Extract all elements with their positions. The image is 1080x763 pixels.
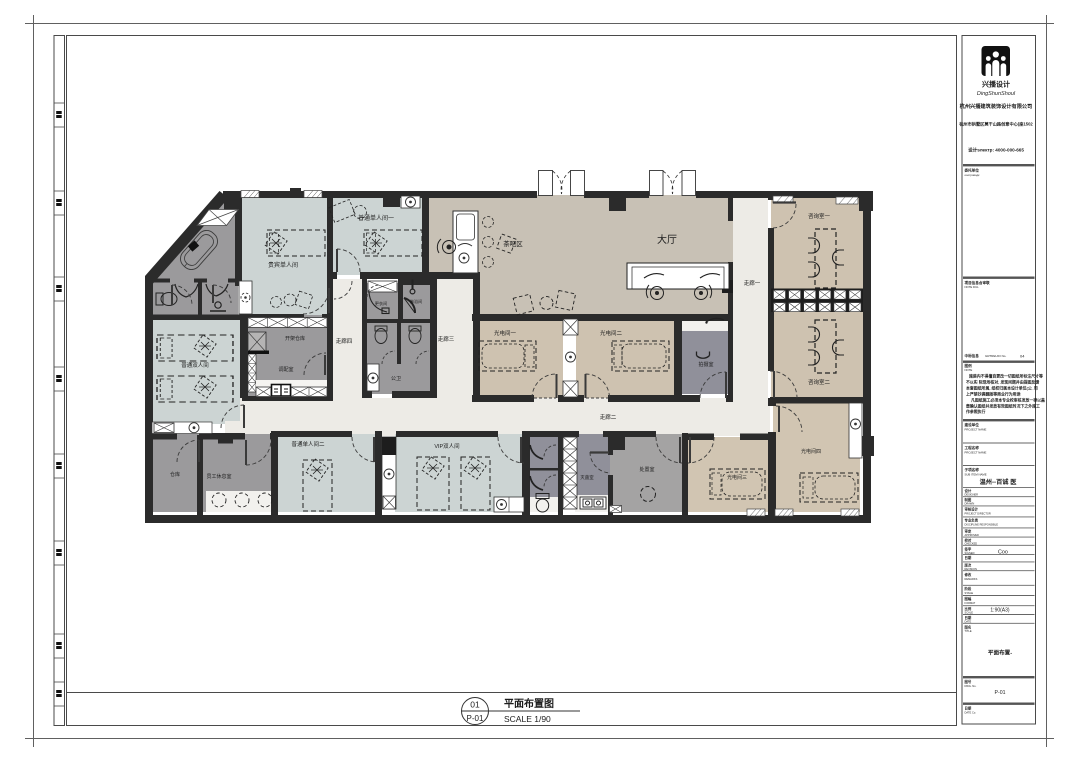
svg-text:DRAWN: DRAWN xyxy=(965,502,975,506)
svg-text:SUB ITEM NAME: SUB ITEM NAME xyxy=(965,473,987,477)
svg-text:杭州兴播建筑装饰设计有限公司: 杭州兴播建筑装饰设计有限公司 xyxy=(960,102,1033,110)
svg-text:PROJECT DIRECTOR: PROJECT DIRECTOR xyxy=(965,512,991,516)
svg-text:NOTE: NOTE xyxy=(965,368,973,372)
svg-text:STAGE: STAGE xyxy=(965,591,974,595)
svg-text:制图: 制图 xyxy=(965,497,972,502)
svg-text:仓库: 仓库 xyxy=(170,471,180,478)
svg-text:施装内不得擅自更改一切图纸所标注尺寸等: 施装内不得擅自更改一切图纸所标注尺寸等 xyxy=(969,374,1043,379)
svg-text:P-01: P-01 xyxy=(995,690,1006,696)
svg-text:调配室: 调配室 xyxy=(278,366,293,373)
svg-text:版次: 版次 xyxy=(965,563,972,568)
svg-text:专业负责: 专业负责 xyxy=(965,518,979,523)
svg-text:CHECKED: CHECKED xyxy=(965,542,978,546)
svg-text:SIGNED: SIGNED xyxy=(965,551,975,555)
svg-text:工程名称: 工程名称 xyxy=(965,445,980,450)
svg-text:日期: 日期 xyxy=(965,706,972,711)
svg-text:普通单人间二: 普通单人间二 xyxy=(291,440,325,448)
svg-text:凡图纸施工必须本专业校审核发放一律以盖: 凡图纸施工必须本专业校审核发放一律以盖 xyxy=(970,398,1045,403)
svg-text:拍摄室: 拍摄室 xyxy=(698,361,713,368)
svg-text:子项名称: 子项名称 xyxy=(965,467,980,472)
svg-text:建设单位: 建设单位 xyxy=(964,422,980,427)
svg-text:咨询室二: 咨询室二 xyxy=(808,378,831,386)
svg-text:04: 04 xyxy=(1020,354,1025,359)
svg-text:图号: 图号 xyxy=(965,679,972,684)
svg-text:日期: 日期 xyxy=(965,615,972,620)
svg-text:更衣间: 更衣间 xyxy=(375,300,388,307)
svg-text:DESIGNER: DESIGNER xyxy=(965,493,979,497)
svg-text:作参照执行: 作参照执行 xyxy=(966,409,986,414)
svg-text:REMARKS: REMARKS xyxy=(965,577,978,581)
svg-text:DATE: DATE xyxy=(965,619,972,623)
svg-text:温州--百诚 医: 温州--百诚 医 xyxy=(980,478,1018,486)
svg-text:APPROVED: APPROVED xyxy=(965,533,980,537)
svg-text:走廊一: 走廊一 xyxy=(744,279,761,287)
svg-text:普通单人间一: 普通单人间一 xyxy=(358,214,394,222)
svg-text:公卫: 公卫 xyxy=(391,376,401,382)
svg-text:PROJECT NAME: PROJECT NAME xyxy=(965,451,987,455)
svg-text:普通双人间: 普通双人间 xyxy=(181,361,209,369)
svg-text:中标信息: 中标信息 xyxy=(965,353,980,358)
svg-text:走廊三: 走廊三 xyxy=(438,335,455,343)
svg-text:设计: 设计 xyxy=(965,488,972,493)
svg-text:日期: 日期 xyxy=(965,555,972,560)
svg-text:审核设计: 审核设计 xyxy=(965,507,979,512)
svg-text:P-01: P-01 xyxy=(467,714,484,723)
svg-text:GRTREUIO No.: GRTREUIO No. xyxy=(985,354,1006,358)
svg-text:Coo: Coo xyxy=(998,550,1008,556)
svg-text:走廊二: 走廊二 xyxy=(600,413,617,421)
svg-text:DISCIPLINE RESPONSIBLE: DISCIPLINE RESPONSIBLE xyxy=(965,523,999,527)
svg-text:章确认图纸并发放有效图纸时况下之外施工: 章确认图纸并发放有效图纸时况下之外施工 xyxy=(966,404,1040,409)
svg-text:FORMAT: FORMAT xyxy=(965,601,976,605)
svg-text:REVISION: REVISION xyxy=(965,567,978,571)
svg-text:员工休息室: 员工休息室 xyxy=(206,473,231,480)
svg-text:NOTE DUL: NOTE DUL xyxy=(965,285,980,289)
svg-text:光电间四: 光电间四 xyxy=(801,448,821,455)
svg-text:图幅: 图幅 xyxy=(965,596,972,601)
svg-text:光电间三: 光电间三 xyxy=(727,474,747,481)
svg-text:设计электр: 4000-000-665: 设计электр: 4000-000-665 xyxy=(968,147,1024,154)
svg-text:淋浴间: 淋浴间 xyxy=(410,298,423,305)
svg-text:大厅: 大厅 xyxy=(657,233,677,246)
svg-text:修改: 修改 xyxy=(964,572,972,577)
svg-text:不以实 际现场核对, 发现间题并由提图反馈: 不以实 际现场核对, 发现间题并由提图反馈 xyxy=(966,380,1039,385)
svg-text:SCALE: SCALE xyxy=(965,611,974,615)
svg-text:签字: 签字 xyxy=(964,547,972,552)
svg-text:贵宾单人间: 贵宾单人间 xyxy=(268,261,298,269)
svg-text:走廊四: 走廊四 xyxy=(336,337,353,345)
svg-text:审定: 审定 xyxy=(965,529,972,534)
svg-text:委托单位: 委托单位 xyxy=(965,168,980,173)
svg-text:比例: 比例 xyxy=(965,606,972,611)
svg-text:杭州市拱墅区莫干山路创意中心(座1502: 杭州市拱墅区莫干山路创意中心(座1502 xyxy=(959,121,1033,128)
svg-text:1:90(A3): 1:90(A3) xyxy=(990,608,1010,614)
svg-text:01: 01 xyxy=(470,700,480,710)
svg-text:DWG. No.: DWG. No. xyxy=(965,684,977,688)
svg-text:TITLE: TITLE xyxy=(965,629,972,633)
svg-text:SCALE 1/90: SCALE 1/90 xyxy=(504,714,551,724)
svg-text:平面布置-: 平面布置- xyxy=(988,649,1012,657)
svg-text:DATE Co.: DATE Co. xyxy=(965,711,977,715)
svg-text:图名: 图名 xyxy=(965,625,972,630)
svg-text:ооотроводк: ооотроводк xyxy=(965,173,981,177)
svg-text:本套图纸所属, 纸权归属本设计单位(公_司: 本套图纸所属, 纸权归属本设计单位(公_司 xyxy=(966,386,1038,391)
svg-text:兴播设计: 兴播设计 xyxy=(982,80,1010,89)
svg-text:灭菌室: 灭菌室 xyxy=(580,474,594,481)
svg-text:PROJECT NAME: PROJECT NAME xyxy=(965,428,987,432)
svg-text:茶吧区: 茶吧区 xyxy=(503,239,523,248)
svg-text:VIP双人间: VIP双人间 xyxy=(434,442,459,450)
svg-text:开架仓库: 开架仓库 xyxy=(285,335,305,342)
svg-text:光电间二: 光电间二 xyxy=(600,329,623,337)
svg-text:光电间一: 光电间一 xyxy=(494,329,517,337)
svg-text:处置室: 处置室 xyxy=(639,466,654,473)
svg-text:阶段: 阶段 xyxy=(965,586,972,591)
svg-text:上严禁抄袭翻版等商业行为用途: 上严禁抄袭翻版等商业行为用途 xyxy=(966,392,1021,397)
svg-text:平面布置图: 平面布置图 xyxy=(504,697,554,710)
svg-text:DingShunShoul: DingShunShoul xyxy=(977,91,1016,97)
svg-text:咨询室一: 咨询室一 xyxy=(808,212,831,220)
